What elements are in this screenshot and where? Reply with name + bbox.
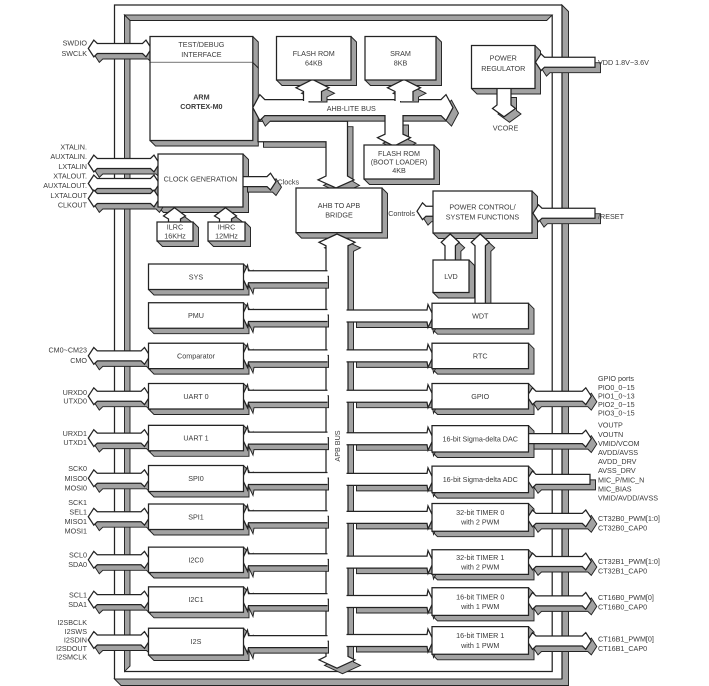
svg-text:CLOCK GENERATION: CLOCK GENERATION — [164, 175, 238, 184]
svg-text:CT16B1_CAP0: CT16B1_CAP0 — [598, 644, 647, 653]
svg-text:MOSI0: MOSI0 — [65, 483, 87, 492]
svg-text:PIO2_0~15: PIO2_0~15 — [598, 400, 635, 409]
svg-text:12MHz: 12MHz — [215, 231, 238, 240]
svg-text:AHB-LITE BUS: AHB-LITE BUS — [327, 104, 376, 113]
svg-text:MIC_BIAS: MIC_BIAS — [598, 484, 632, 493]
svg-text:VMID/VCOM: VMID/VCOM — [598, 439, 640, 448]
svg-text:SCL1: SCL1 — [69, 590, 87, 599]
svg-text:CLKOUT: CLKOUT — [58, 201, 88, 210]
svg-text:UART 0: UART 0 — [183, 392, 208, 401]
svg-text:POWER: POWER — [490, 54, 517, 63]
svg-text:64KB: 64KB — [305, 59, 323, 68]
svg-text:VCORE: VCORE — [493, 123, 519, 132]
svg-text:SDA1: SDA1 — [68, 600, 87, 609]
svg-text:CT32B1_PWM[1:0]: CT32B1_PWM[1:0] — [598, 557, 660, 566]
svg-text:PIO1_0~13: PIO1_0~13 — [598, 391, 635, 400]
svg-text:32-bit TIMER 1: 32-bit TIMER 1 — [456, 553, 504, 562]
svg-text:(BOOT LOADER): (BOOT LOADER) — [371, 158, 428, 167]
svg-text:UTXD1: UTXD1 — [63, 438, 87, 447]
svg-text:16-bit TIMER 1: 16-bit TIMER 1 — [456, 631, 504, 640]
svg-text:CT32B0_CAP0: CT32B0_CAP0 — [598, 523, 647, 532]
svg-text:SDA0: SDA0 — [68, 560, 87, 569]
svg-text:VMID/AVDD/AVSS: VMID/AVDD/AVSS — [598, 494, 658, 503]
svg-text:32-bit TIMER 0: 32-bit TIMER 0 — [456, 508, 504, 517]
svg-text:PMU: PMU — [188, 311, 204, 320]
svg-text:AVSS_DRV: AVSS_DRV — [598, 466, 636, 475]
svg-text:URXD1: URXD1 — [63, 429, 87, 438]
svg-text:MISO1: MISO1 — [65, 517, 87, 526]
svg-text:ARM: ARM — [193, 93, 209, 102]
svg-text:CT32B0_PWM[1:0]: CT32B0_PWM[1:0] — [598, 514, 660, 523]
svg-text:I2C0: I2C0 — [188, 555, 203, 564]
svg-text:LVD: LVD — [444, 272, 457, 281]
svg-text:POWER CONTROL/: POWER CONTROL/ — [449, 203, 515, 212]
svg-text:8KB: 8KB — [394, 59, 408, 68]
svg-text:I2S: I2S — [191, 637, 202, 646]
svg-text:LXTALIN: LXTALIN — [58, 162, 87, 171]
svg-text:SWCLK: SWCLK — [61, 49, 87, 58]
svg-text:with 2 PWM: with 2 PWM — [460, 518, 499, 527]
svg-text:FLASH ROM: FLASH ROM — [378, 149, 420, 158]
svg-text:SYSTEM FUNCTIONS: SYSTEM FUNCTIONS — [446, 212, 520, 221]
svg-text:GPIO ports: GPIO ports — [598, 374, 634, 383]
svg-text:/RESET: /RESET — [598, 212, 625, 221]
svg-text:4KB: 4KB — [392, 166, 406, 175]
svg-text:IHRC: IHRC — [218, 223, 236, 232]
svg-text:CT16B1_PWM[0]: CT16B1_PWM[0] — [598, 634, 654, 643]
svg-text:AUXTALIN.: AUXTALIN. — [50, 152, 87, 161]
svg-text:CORTEX-M0: CORTEX-M0 — [180, 102, 222, 111]
svg-text:CM0~CM23: CM0~CM23 — [48, 345, 87, 354]
svg-text:CT16B0_PWM[0]: CT16B0_PWM[0] — [598, 593, 654, 602]
svg-text:CT32B1_CAP0: CT32B1_CAP0 — [598, 567, 647, 576]
svg-text:CT16B0_CAP0: CT16B0_CAP0 — [598, 603, 647, 612]
svg-text:16KHz: 16KHz — [164, 231, 186, 240]
svg-text:SRAM: SRAM — [390, 49, 411, 58]
svg-text:VDD 1.8V~3.6V: VDD 1.8V~3.6V — [598, 58, 649, 67]
svg-text:16-bit TIMER 0: 16-bit TIMER 0 — [456, 592, 504, 601]
svg-text:SEL1: SEL1 — [69, 507, 87, 516]
svg-text:AUXTALOUT.: AUXTALOUT. — [43, 181, 87, 190]
svg-text:XTALIN.: XTALIN. — [60, 143, 87, 152]
svg-text:with 2 PWM: with 2 PWM — [460, 562, 499, 571]
svg-text:MOSI1: MOSI1 — [65, 527, 87, 536]
svg-text:AHB TO APB: AHB TO APB — [318, 201, 361, 210]
svg-text:SCL0: SCL0 — [69, 551, 87, 560]
svg-text:Clocks: Clocks — [278, 177, 300, 186]
svg-text:AVDD/AVSS: AVDD/AVSS — [598, 448, 638, 457]
svg-text:VOUTN: VOUTN — [598, 430, 623, 439]
svg-text:INTERFACE: INTERFACE — [181, 50, 222, 59]
svg-text:SCK0: SCK0 — [68, 464, 87, 473]
svg-text:GPIO: GPIO — [471, 392, 489, 401]
svg-text:UTXD0: UTXD0 — [63, 397, 87, 406]
svg-text:SYS: SYS — [189, 272, 204, 281]
svg-text:ILRC: ILRC — [167, 223, 183, 232]
svg-text:URXD0: URXD0 — [63, 388, 87, 397]
svg-text:TEST/DEBUG: TEST/DEBUG — [178, 40, 224, 49]
svg-text:SWDIO: SWDIO — [63, 38, 88, 47]
svg-text:MIC_P/MIC_N: MIC_P/MIC_N — [598, 475, 644, 484]
svg-text:SCK1: SCK1 — [68, 498, 87, 507]
svg-text:LXTALOUT: LXTALOUT — [50, 191, 87, 200]
svg-text:16-bit Sigma-delta ADC: 16-bit Sigma-delta ADC — [443, 475, 518, 484]
svg-text:I2C1: I2C1 — [188, 595, 203, 604]
svg-text:FLASH ROM: FLASH ROM — [293, 49, 335, 58]
svg-text:CMO: CMO — [70, 356, 87, 365]
svg-text:XTALOUT.: XTALOUT. — [53, 172, 87, 181]
svg-text:SPI1: SPI1 — [188, 512, 204, 521]
svg-text:I2SMCLK: I2SMCLK — [56, 653, 87, 662]
svg-text:BRIDGE: BRIDGE — [325, 211, 353, 220]
svg-text:VOUTP: VOUTP — [598, 421, 623, 430]
svg-text:RTC: RTC — [473, 351, 488, 360]
svg-text:MISO0: MISO0 — [65, 474, 87, 483]
svg-text:16-bit Sigma-delta DAC: 16-bit Sigma-delta DAC — [442, 434, 518, 443]
svg-text:with 1 PWM: with 1 PWM — [460, 641, 499, 650]
svg-text:REGULATOR: REGULATOR — [481, 64, 525, 73]
svg-text:AVDD_DRV: AVDD_DRV — [598, 457, 637, 466]
svg-text:PIO3_0~15: PIO3_0~15 — [598, 409, 635, 418]
svg-text:Comparator: Comparator — [177, 351, 216, 360]
svg-text:PIO0_0~15: PIO0_0~15 — [598, 383, 635, 392]
svg-text:UART 1: UART 1 — [183, 434, 208, 443]
svg-text:Controls: Controls — [388, 209, 415, 218]
svg-text:SPI0: SPI0 — [188, 474, 204, 483]
svg-text:WDT: WDT — [472, 312, 489, 321]
svg-text:with 1 PWM: with 1 PWM — [460, 602, 499, 611]
svg-text:APB BUS: APB BUS — [333, 430, 342, 461]
